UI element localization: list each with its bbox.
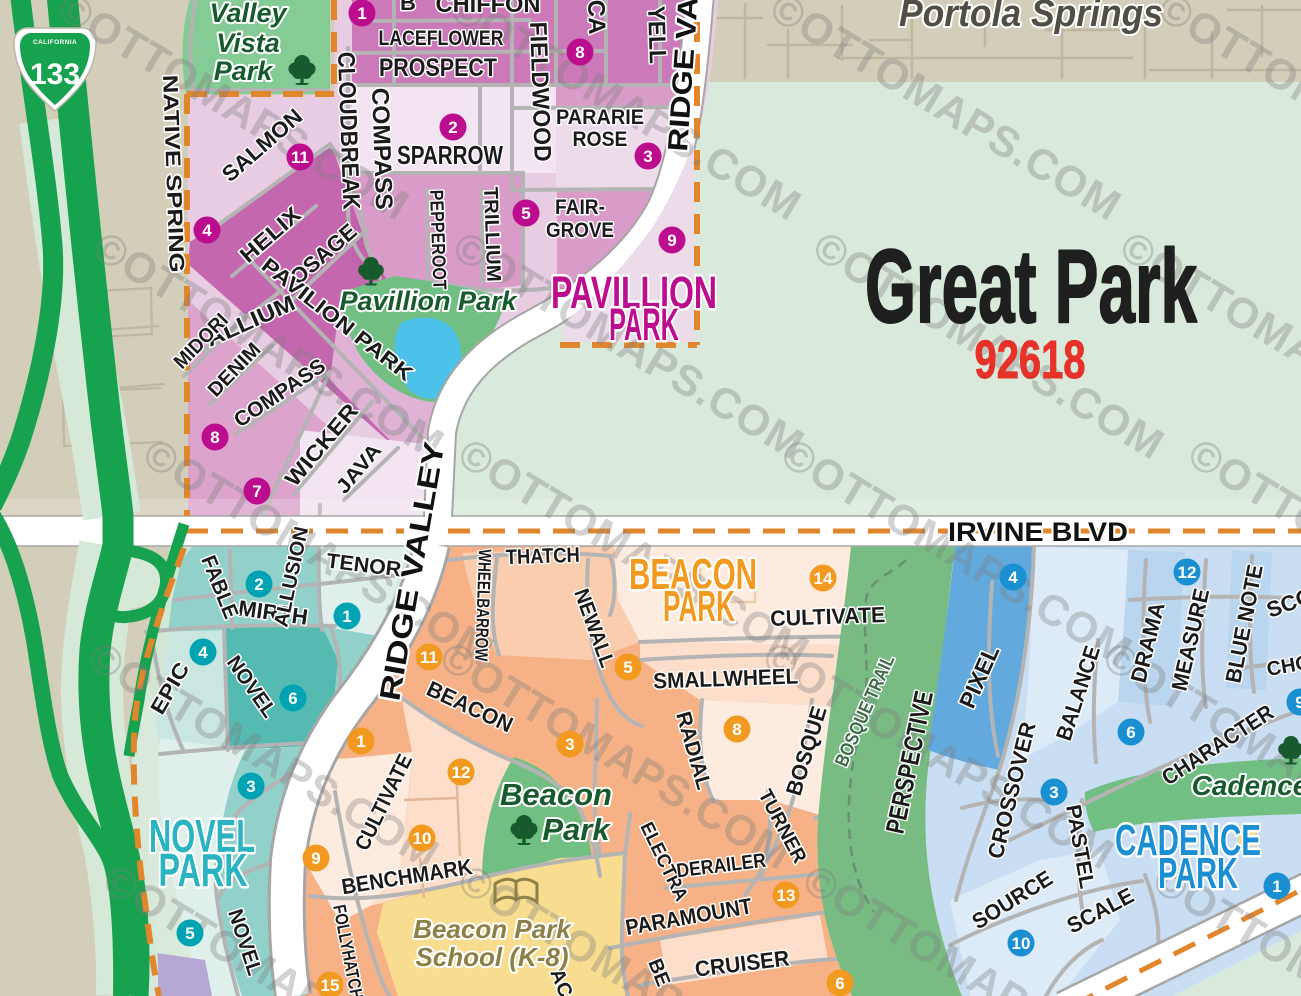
svg-text:8: 8 [732,720,741,739]
svg-text:1: 1 [342,607,351,626]
svg-text:1: 1 [357,4,366,23]
svg-text:9: 9 [1295,693,1301,712]
svg-text:CULTIVATE: CULTIVATE [770,602,886,631]
svg-text:PARK: PARK [159,844,248,896]
svg-text:Cadence: Cadence [1192,770,1301,801]
svg-text:GROVE: GROVE [546,219,614,242]
svg-text:FIELDWOOD: FIELDWOOD [524,21,556,162]
svg-text:5: 5 [623,658,632,677]
svg-text:LACEFLOWER: LACEFLOWER [379,27,504,50]
svg-text:WHEELBARROW: WHEELBARROW [471,549,495,662]
svg-text:8: 8 [575,43,584,62]
svg-text:Park: Park [214,56,275,86]
svg-text:Beacon Park: Beacon Park [413,914,572,944]
svg-text:6: 6 [1126,723,1135,742]
svg-text:11: 11 [291,148,309,167]
svg-text:5: 5 [185,924,194,943]
svg-text:PROSPECT: PROSPECT [379,54,497,82]
svg-text:Vista: Vista [216,28,280,58]
svg-text:IRVINE BLVD: IRVINE BLVD [948,517,1128,547]
svg-text:COMPASS: COMPASS [366,87,397,210]
svg-text:PARK: PARK [663,582,735,631]
svg-text:3: 3 [246,777,255,796]
svg-text:Valley: Valley [209,0,288,28]
svg-text:6: 6 [288,689,297,708]
svg-text:9: 9 [311,849,320,868]
svg-text:SMALLWHEEL: SMALLWHEEL [653,663,799,693]
svg-text:9: 9 [667,231,676,250]
svg-text:92618: 92618 [975,330,1086,390]
svg-text:PEPPEROOT: PEPPEROOT [425,189,449,290]
svg-text:12: 12 [452,763,471,782]
svg-text:SPARROW: SPARROW [397,140,503,170]
svg-text:Portola Springs: Portola Springs [899,0,1163,35]
svg-text:PARK: PARK [1158,849,1238,898]
svg-text:School (K-8): School (K-8) [415,942,568,972]
svg-text:133: 133 [30,58,80,91]
svg-text:3: 3 [643,147,652,166]
svg-text:Pavillion Park: Pavillion Park [339,286,518,316]
svg-text:THATCH: THATCH [505,544,580,570]
svg-text:1: 1 [356,732,365,751]
svg-text:PARK: PARK [609,299,679,350]
svg-text:15: 15 [321,976,340,995]
svg-text:11: 11 [420,648,438,667]
svg-text:CA: CA [582,0,610,35]
svg-text:PARARIE: PARARIE [556,106,644,129]
svg-text:4: 4 [198,643,208,662]
svg-text:3: 3 [1049,783,1058,802]
svg-text:2: 2 [448,118,457,137]
svg-text:6: 6 [835,974,844,993]
svg-text:CHIFFON: CHIFFON [436,0,541,18]
svg-text:FAIR-: FAIR- [555,196,605,219]
svg-text:ROSE: ROSE [573,128,628,151]
svg-text:5: 5 [521,204,530,223]
svg-text:B: B [400,0,416,15]
svg-text:1: 1 [1272,877,1281,896]
svg-text:10: 10 [1012,934,1031,953]
svg-text:TRILLIUM: TRILLIUM [479,186,504,282]
svg-text:Beacon: Beacon [500,777,612,812]
svg-text:Park: Park [542,812,611,847]
svg-text:YELL: YELL [642,5,671,64]
svg-text:4: 4 [202,221,212,240]
svg-text:3: 3 [565,735,574,754]
svg-text:Great Park: Great Park [865,229,1197,345]
svg-text:14: 14 [814,569,833,588]
svg-text:2: 2 [254,575,263,594]
svg-text:CLOUDBREAK: CLOUDBREAK [332,51,365,210]
svg-text:13: 13 [777,886,796,905]
svg-text:4: 4 [1008,568,1018,587]
svg-text:12: 12 [1178,563,1197,582]
svg-text:CALIFORNIA: CALIFORNIA [33,39,77,46]
svg-text:8: 8 [210,428,219,447]
svg-text:7: 7 [252,482,261,501]
svg-text:10: 10 [413,829,432,848]
